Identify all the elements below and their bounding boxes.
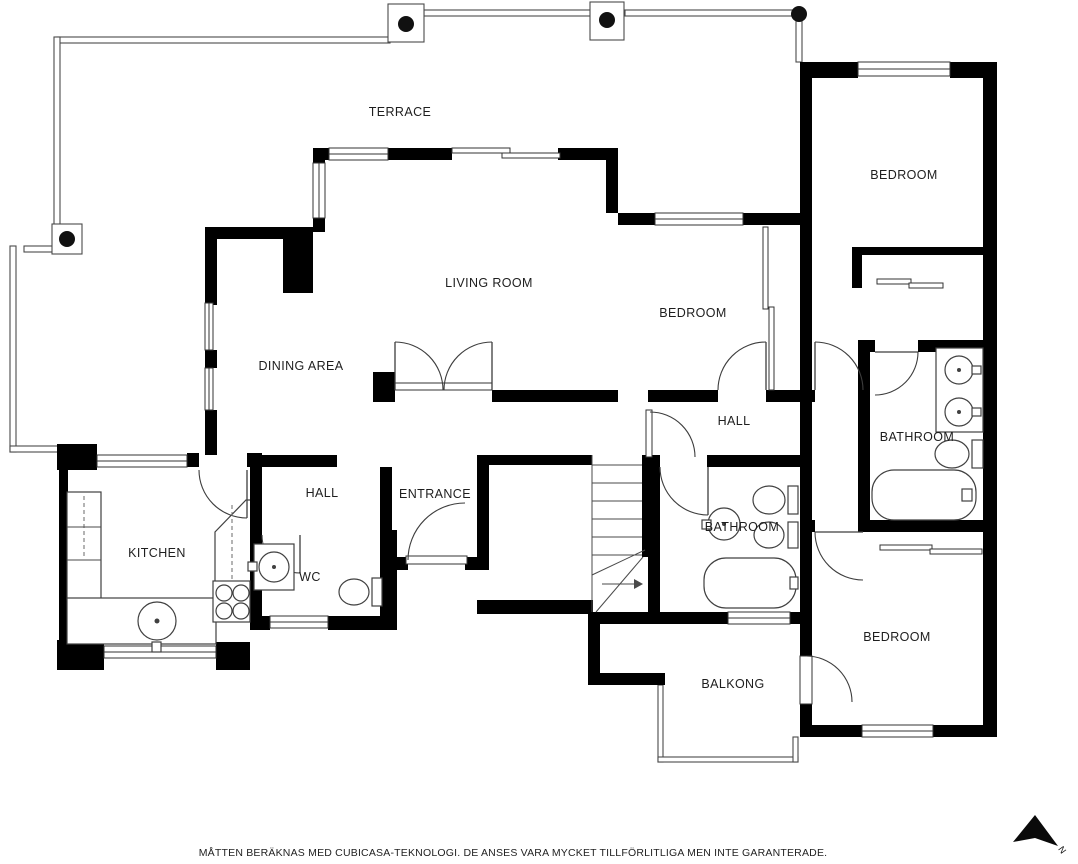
room-label-living-room: LIVING ROOM — [445, 276, 533, 290]
staircase — [592, 455, 645, 612]
toilet-icon — [753, 486, 798, 514]
window-icon — [205, 368, 213, 410]
sink-icon — [248, 544, 294, 590]
toilet-icon — [935, 440, 983, 468]
window-icon — [97, 455, 187, 467]
door-icon — [646, 410, 695, 457]
double-door-icon — [395, 342, 492, 390]
room-label-hall-lower: HALL — [306, 486, 339, 500]
bathtub-icon — [872, 470, 976, 520]
door-icon — [718, 342, 766, 390]
door-icon — [815, 342, 863, 390]
entrance-door-icon — [406, 503, 467, 564]
window-icon — [655, 213, 743, 225]
toilet-icon — [339, 578, 382, 606]
balcony-door-icon — [800, 656, 852, 704]
room-label-kitchen: KITCHEN — [128, 546, 186, 560]
sliding-door-icon — [877, 279, 943, 288]
window-icon — [313, 163, 325, 218]
door-icon — [815, 532, 863, 580]
door-icon — [875, 352, 918, 395]
window-icon — [270, 616, 328, 628]
room-label-entrance: ENTRANCE — [399, 487, 471, 501]
room-label-balcony: BALKONG — [701, 677, 764, 691]
door-icon — [660, 467, 708, 515]
window-icon — [728, 612, 790, 624]
room-label-hall-upper: HALL — [718, 414, 751, 428]
room-label-dining-area: DINING AREA — [259, 359, 344, 373]
bathtub-icon — [704, 558, 798, 608]
room-label-bathroom-right: BATHROOM — [880, 430, 955, 444]
stove-icon — [213, 581, 250, 622]
kitchen-fixtures — [67, 492, 250, 652]
door-icon — [199, 470, 247, 518]
balcony-railing — [658, 685, 798, 762]
sliding-door-icon — [880, 545, 982, 554]
room-label-bedroom-top: BEDROOM — [870, 168, 937, 182]
fridge-cabinet-icon — [67, 492, 101, 600]
room-label-bedroom-mid: BEDROOM — [659, 306, 726, 320]
window-icon — [329, 148, 388, 160]
room-label-bedroom-bottom: BEDROOM — [863, 630, 930, 644]
window-icon — [862, 725, 933, 737]
floorplan: TERRACE LIVING ROOM DINING AREA BEDROOM … — [0, 0, 1078, 864]
room-label-terrace: TERRACE — [369, 105, 432, 119]
sliding-door-icon — [763, 227, 774, 390]
north-arrow-icon — [1013, 815, 1058, 846]
room-label-bathroom-mid: BATHROOM — [705, 520, 780, 534]
bathroom-mid-fixtures — [702, 486, 798, 608]
window-icon — [205, 303, 213, 350]
room-label-wc: WC — [299, 570, 321, 584]
sliding-door-icon — [452, 148, 560, 158]
disclaimer-text: MÅTTEN BERÄKNAS MED CUBICASA-TEKNOLOGI. … — [199, 847, 828, 859]
window-icon — [858, 62, 950, 76]
vanity-icon — [936, 348, 983, 432]
